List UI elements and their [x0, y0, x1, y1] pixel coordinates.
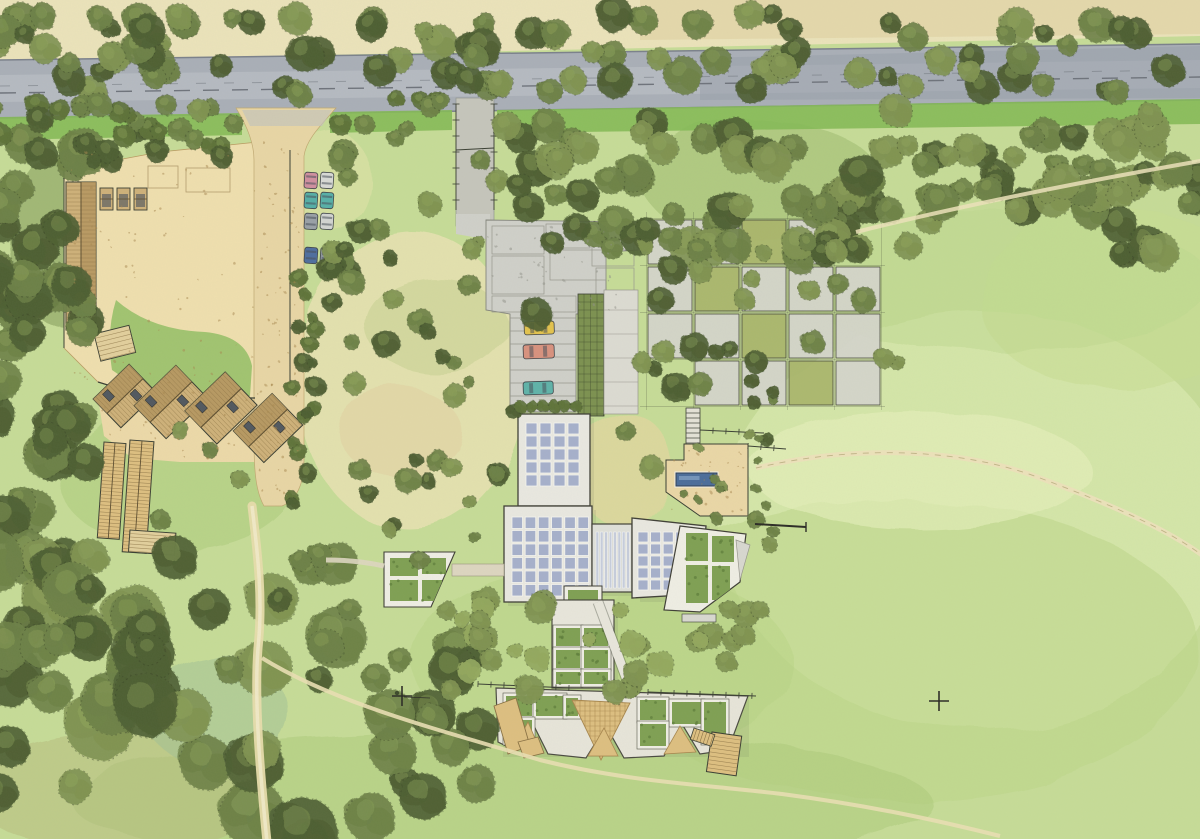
- speckle: [540, 262, 542, 264]
- planting-speckle: [410, 583, 413, 586]
- tree-highlight: [1013, 47, 1026, 60]
- skylight: [526, 423, 537, 434]
- planting-speckle: [409, 597, 412, 600]
- tree-highlight: [315, 633, 329, 647]
- bed-speckle: [559, 682, 562, 685]
- tree-canopy: [683, 493, 688, 498]
- hut-opening: [136, 194, 145, 207]
- speckle: [741, 465, 743, 467]
- speckle: [233, 444, 235, 446]
- cross-bush-dot: [395, 691, 399, 695]
- speckle: [185, 168, 187, 170]
- tree-highlight: [884, 16, 892, 24]
- tree-highlight: [353, 462, 362, 471]
- trellis-walk: [578, 294, 604, 416]
- skylight: [540, 436, 551, 447]
- terrace-bed: [637, 697, 669, 723]
- tree-highlight: [568, 217, 580, 229]
- skylight: [638, 580, 648, 590]
- trellis-canopy: [578, 294, 604, 416]
- planting-speckle: [421, 599, 424, 602]
- planting-speckle: [685, 557, 688, 560]
- tree-highlight: [519, 196, 532, 209]
- tree-canopy: [292, 502, 299, 509]
- tree-highlight: [244, 14, 254, 24]
- rooflight-strip: [614, 532, 617, 588]
- tree-highlight: [408, 779, 428, 799]
- tree-highlight: [465, 770, 481, 786]
- speckle: [271, 202, 273, 204]
- speckle: [147, 423, 149, 425]
- planting-speckle: [729, 539, 732, 542]
- speckle: [162, 173, 164, 175]
- tree-highlight: [963, 63, 972, 72]
- speckle: [165, 403, 166, 404]
- speckle: [232, 313, 235, 316]
- tree-canopy: [473, 535, 480, 542]
- tree-highlight: [171, 7, 182, 18]
- speckle: [283, 492, 286, 495]
- speckle: [192, 392, 194, 394]
- tree-highlight: [667, 206, 676, 215]
- tree-highlight: [602, 44, 615, 57]
- tree-highlight: [462, 71, 474, 83]
- tree-highlight: [367, 668, 379, 680]
- speckle: [294, 207, 296, 209]
- tree-highlight: [301, 466, 309, 474]
- tree-canopy: [772, 399, 777, 404]
- tree-highlight: [903, 77, 913, 87]
- speckle: [688, 496, 690, 498]
- tree-canopy: [849, 205, 857, 213]
- tree: [840, 154, 884, 197]
- tree-highlight: [446, 461, 454, 469]
- bed-speckle: [602, 678, 605, 681]
- tree-highlight: [1111, 131, 1126, 146]
- tree-highlight: [1095, 161, 1106, 172]
- spine-bed: [553, 647, 583, 671]
- skylight: [525, 571, 536, 583]
- tree-highlight: [393, 651, 403, 661]
- skylight: [512, 558, 523, 570]
- spine-bed: [553, 669, 583, 687]
- tree-highlight: [293, 271, 301, 279]
- tree-highlight: [172, 120, 182, 130]
- speckle: [122, 206, 124, 208]
- bed-planting: [584, 650, 608, 668]
- speckle: [277, 469, 278, 470]
- speckle: [537, 264, 540, 267]
- tree-highlight: [877, 140, 891, 154]
- wash: [750, 410, 1090, 530]
- bed-speckle: [693, 709, 696, 712]
- tree-highlight: [430, 453, 439, 462]
- tree-highlight: [1143, 106, 1153, 116]
- speckle: [730, 491, 732, 493]
- tree-highlight: [333, 149, 344, 160]
- planting-speckle: [436, 580, 439, 583]
- speckle: [534, 238, 536, 240]
- tree-highlight: [362, 15, 375, 28]
- speckle: [581, 261, 582, 262]
- speckle: [673, 459, 675, 461]
- tree-highlight: [1006, 12, 1021, 27]
- car-body: [304, 192, 318, 209]
- tree-highlight: [30, 97, 40, 107]
- tree-highlight: [103, 47, 114, 58]
- speckle: [288, 353, 289, 354]
- speckle: [726, 496, 729, 499]
- speckle: [265, 416, 266, 417]
- tree-highlight: [1108, 82, 1119, 93]
- tree: [456, 764, 496, 803]
- parked-car: [304, 213, 318, 230]
- speckle: [682, 462, 684, 464]
- skylight: [552, 571, 563, 583]
- speckle: [108, 239, 110, 241]
- tree-highlight: [312, 670, 323, 681]
- tree-highlight: [805, 333, 815, 343]
- tree-highlight: [802, 282, 811, 291]
- tree: [514, 675, 544, 705]
- tree-highlight: [35, 37, 48, 50]
- speckle: [260, 390, 263, 393]
- tree-highlight: [51, 217, 65, 231]
- speckle: [233, 262, 236, 265]
- tree-highlight: [901, 137, 910, 146]
- speckle: [610, 277, 613, 280]
- speckle: [285, 427, 287, 429]
- terrace-bed: [669, 699, 705, 727]
- skylight: [540, 475, 551, 486]
- skylight: [568, 475, 579, 486]
- tree-highlight: [31, 142, 45, 156]
- tree-highlight: [287, 381, 294, 388]
- tree-highlight: [101, 143, 111, 153]
- tree-highlight: [63, 56, 72, 65]
- speckle: [125, 265, 128, 268]
- car-body: [304, 172, 318, 189]
- speckle: [71, 170, 72, 171]
- bed-speckle: [565, 714, 568, 717]
- tree-highlight: [17, 321, 32, 336]
- tree-highlight: [878, 351, 886, 359]
- tree-highlight: [227, 12, 235, 20]
- speckle: [502, 299, 505, 302]
- tree-highlight: [485, 652, 494, 661]
- speckle: [141, 405, 143, 407]
- speckle: [545, 270, 547, 272]
- tree-canopy: [564, 404, 571, 411]
- speckle: [221, 273, 222, 274]
- bed-speckle: [578, 673, 581, 676]
- tree-highlight: [1039, 27, 1047, 35]
- tree-canopy: [772, 529, 779, 536]
- speckle: [182, 450, 184, 452]
- skylight: [554, 462, 565, 473]
- tree-highlight: [75, 621, 94, 640]
- tree: [491, 112, 521, 142]
- speckle: [216, 447, 219, 450]
- tree-highlight: [623, 160, 638, 175]
- skylight: [578, 544, 589, 556]
- tree-highlight: [440, 603, 448, 611]
- tree-highlight: [93, 96, 103, 106]
- speckle: [183, 216, 184, 217]
- tree-highlight: [653, 291, 664, 302]
- skylight: [638, 532, 648, 542]
- tree-highlight: [829, 243, 838, 252]
- rooflight-strip: [618, 532, 621, 588]
- tree-highlight: [39, 428, 53, 442]
- speckle: [291, 210, 293, 212]
- bed-speckle: [596, 672, 599, 675]
- tree-highlight: [880, 201, 891, 212]
- tree-highlight: [572, 136, 586, 150]
- speckle: [538, 294, 539, 295]
- speckle: [189, 172, 191, 174]
- speckle: [269, 198, 271, 200]
- speckle: [144, 426, 146, 428]
- tree-highlight: [81, 580, 93, 592]
- tree-highlight: [1010, 201, 1020, 211]
- speckle: [176, 184, 178, 186]
- tree-highlight: [457, 612, 465, 620]
- speckle: [293, 281, 295, 283]
- speckle: [193, 420, 194, 421]
- tree-canopy: [754, 486, 759, 491]
- tree-highlight: [423, 196, 433, 206]
- speckle: [726, 461, 728, 463]
- speckle: [88, 380, 89, 381]
- planting-speckle: [392, 561, 395, 564]
- speckle: [263, 233, 266, 236]
- skylight: [552, 558, 563, 570]
- speckle: [519, 277, 521, 279]
- planting-speckle: [688, 582, 691, 585]
- speckle: [91, 225, 93, 227]
- speckle: [289, 221, 292, 224]
- speckle: [704, 480, 706, 482]
- speckle: [671, 508, 672, 509]
- speckle: [154, 210, 156, 212]
- planting-speckle: [717, 592, 720, 595]
- tree-highlight: [1037, 77, 1047, 87]
- tree-highlight: [750, 513, 758, 521]
- speckle: [610, 244, 612, 246]
- speckle: [75, 283, 77, 285]
- tree-highlight: [154, 126, 161, 133]
- speckle: [270, 412, 272, 414]
- tree-canopy: [297, 324, 305, 332]
- speckle: [176, 437, 178, 439]
- tree-highlight: [229, 117, 237, 125]
- bed-speckle: [567, 705, 570, 708]
- speckle: [263, 142, 266, 145]
- speckle: [257, 286, 259, 288]
- tree-highlight: [136, 616, 154, 634]
- bed-speckle: [553, 706, 556, 709]
- tree-highlight: [423, 708, 436, 721]
- tree: [486, 70, 513, 96]
- tree-highlight: [492, 74, 503, 85]
- speckle: [283, 409, 285, 411]
- speckle: [284, 209, 286, 211]
- speckle: [227, 154, 229, 156]
- speckle: [270, 321, 272, 323]
- speckle: [91, 187, 94, 190]
- speckle: [187, 297, 189, 299]
- skylight: [651, 556, 661, 566]
- skylight: [538, 531, 549, 543]
- speckle: [264, 426, 266, 428]
- skylight: [578, 558, 589, 570]
- skylight: [512, 531, 523, 543]
- speckle: [150, 373, 151, 374]
- tree-highlight: [154, 513, 162, 521]
- tree-highlight: [657, 343, 666, 352]
- tree-highlight: [474, 153, 482, 161]
- speckle: [202, 189, 204, 191]
- tree-highlight: [1112, 186, 1123, 197]
- speckle: [267, 295, 269, 297]
- speckle: [134, 277, 135, 278]
- planting-speckle: [722, 569, 725, 572]
- tree-highlight: [955, 182, 965, 192]
- planting-speckle: [705, 566, 708, 569]
- tree-highlight: [741, 4, 753, 16]
- tree-highlight: [474, 613, 482, 621]
- tree-highlight: [342, 170, 350, 178]
- garden-walk: [604, 290, 638, 414]
- speckle: [258, 468, 260, 470]
- tree-highlight: [635, 10, 647, 22]
- tree-highlight: [73, 320, 86, 333]
- speckle: [288, 197, 290, 199]
- speckle: [593, 304, 595, 306]
- planting-speckle: [397, 579, 400, 582]
- tree-highlight: [1158, 58, 1172, 72]
- tree-highlight: [435, 94, 443, 102]
- tree-highlight: [693, 242, 703, 252]
- tree-highlight: [359, 118, 367, 126]
- speckle: [716, 474, 718, 476]
- tree-highlight: [32, 110, 43, 121]
- speckle: [219, 351, 221, 353]
- tree-highlight: [188, 132, 196, 140]
- bed-speckle: [640, 723, 643, 726]
- tree-highlight: [369, 58, 382, 71]
- speckle: [700, 465, 701, 466]
- terrace-bed: [637, 721, 669, 749]
- planting-speckle: [694, 576, 697, 579]
- tree-highlight: [127, 682, 153, 708]
- tree-highlight: [305, 338, 312, 345]
- skylight: [578, 571, 589, 583]
- skylight: [638, 568, 648, 578]
- tree-highlight: [414, 553, 422, 561]
- speckle: [120, 430, 121, 431]
- tree-highlight: [36, 7, 47, 18]
- bed-speckle: [595, 632, 598, 635]
- tree-highlight: [1008, 149, 1017, 158]
- tree-highlight: [348, 375, 357, 384]
- speckle: [133, 271, 135, 273]
- speckle: [164, 377, 166, 379]
- skylight: [651, 580, 661, 590]
- bed-speckle: [527, 712, 530, 715]
- skylight: [663, 544, 673, 554]
- speckle: [685, 462, 687, 464]
- garden-pad: [742, 314, 786, 358]
- tree-highlight: [917, 156, 928, 167]
- tree-highlight: [538, 114, 552, 128]
- tree-highlight: [293, 40, 309, 56]
- tree-highlight: [326, 243, 336, 253]
- speckle: [689, 451, 691, 453]
- hut-opening: [119, 194, 128, 207]
- tree-canopy: [313, 406, 321, 414]
- speckle: [600, 301, 601, 302]
- rooflight-strip: [600, 532, 603, 588]
- speckle: [736, 465, 738, 467]
- speckle: [738, 507, 740, 509]
- speckle: [708, 460, 710, 462]
- tree-highlight: [520, 679, 532, 691]
- tree-highlight: [724, 343, 731, 350]
- tree-highlight: [849, 160, 867, 178]
- tree-highlight: [282, 806, 311, 835]
- tree-highlight: [141, 639, 154, 652]
- bed-planting: [672, 702, 702, 724]
- planting-speckle: [389, 583, 392, 586]
- speckle: [91, 154, 93, 156]
- tree-highlight: [708, 50, 720, 62]
- skylight: [651, 568, 661, 578]
- speckle: [608, 280, 610, 282]
- tree-highlight: [117, 128, 126, 137]
- tree-highlight: [628, 663, 639, 674]
- speckle: [252, 189, 253, 190]
- tree-highlight: [904, 27, 916, 39]
- tree-highlight: [604, 68, 619, 83]
- speckle: [508, 246, 511, 249]
- bed-speckle: [568, 712, 571, 715]
- speckle: [542, 281, 545, 284]
- speckle: [130, 378, 132, 380]
- speckle: [299, 467, 301, 469]
- speckle: [252, 306, 254, 308]
- tree-highlight: [6, 176, 20, 190]
- tree-highlight: [645, 459, 655, 469]
- parked-car: [304, 247, 318, 264]
- tree-highlight: [688, 13, 701, 26]
- planting-speckle: [396, 565, 399, 568]
- tree-highlight: [734, 197, 744, 207]
- speckle: [123, 362, 124, 363]
- tree-highlight: [882, 70, 890, 78]
- rooflight-strip: [622, 532, 625, 588]
- tree-highlight: [720, 654, 729, 663]
- speckle: [554, 296, 556, 298]
- parked-car: [304, 192, 318, 209]
- speckle: [200, 414, 202, 416]
- parked-car: [320, 213, 334, 230]
- tree-highlight: [685, 336, 697, 348]
- tree-highlight: [784, 21, 794, 31]
- site-plan-stage: [0, 0, 1200, 839]
- rooflight-strip: [605, 532, 608, 588]
